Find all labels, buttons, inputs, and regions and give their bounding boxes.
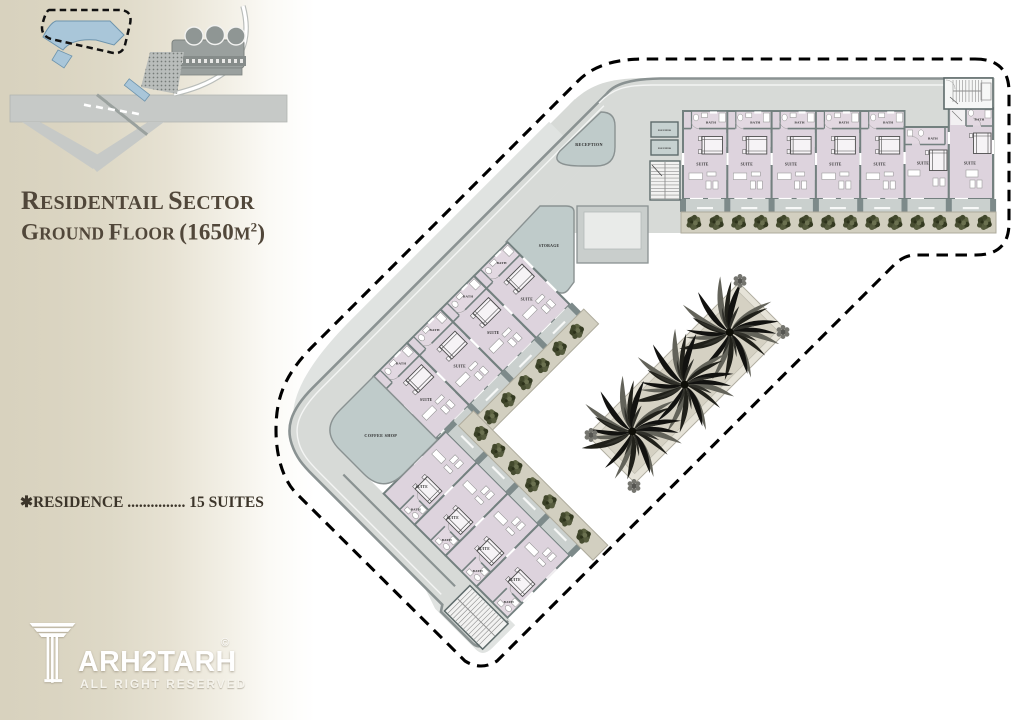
svg-text:ELEVATOR: ELEVATOR [658,129,671,132]
svg-text:ELEVATOR: ELEVATOR [658,147,671,150]
svg-text:COFFEE SHOP: COFFEE SHOP [364,433,397,438]
svg-text:BATH: BATH [430,328,440,332]
svg-text:BATH: BATH [975,118,985,122]
svg-text:SUITE: SUITE [447,516,460,520]
svg-text:BATH: BATH [497,261,507,265]
svg-text:BATH: BATH [928,137,938,141]
svg-text:SUITE: SUITE [917,162,930,166]
svg-text:BATH: BATH [411,507,421,511]
svg-text:BATH: BATH [442,538,452,542]
svg-text:SUITE: SUITE [487,331,500,335]
svg-text:STORAGE: STORAGE [539,244,560,248]
svg-text:SUITE: SUITE [964,162,977,166]
svg-text:SUITE: SUITE [521,297,534,301]
svg-text:BATH: BATH [504,600,514,604]
svg-text:SUITE: SUITE [478,547,491,551]
svg-text:BATH: BATH [473,569,483,573]
svg-text:SUITE: SUITE [416,485,429,489]
svg-text:SUITE: SUITE [509,578,522,582]
svg-text:SUITE: SUITE [420,398,433,402]
svg-text:BATH: BATH [463,294,473,298]
svg-text:BATH: BATH [396,361,406,365]
svg-text:SUITE: SUITE [454,364,467,368]
svg-text:RECEPTION: RECEPTION [575,142,603,147]
